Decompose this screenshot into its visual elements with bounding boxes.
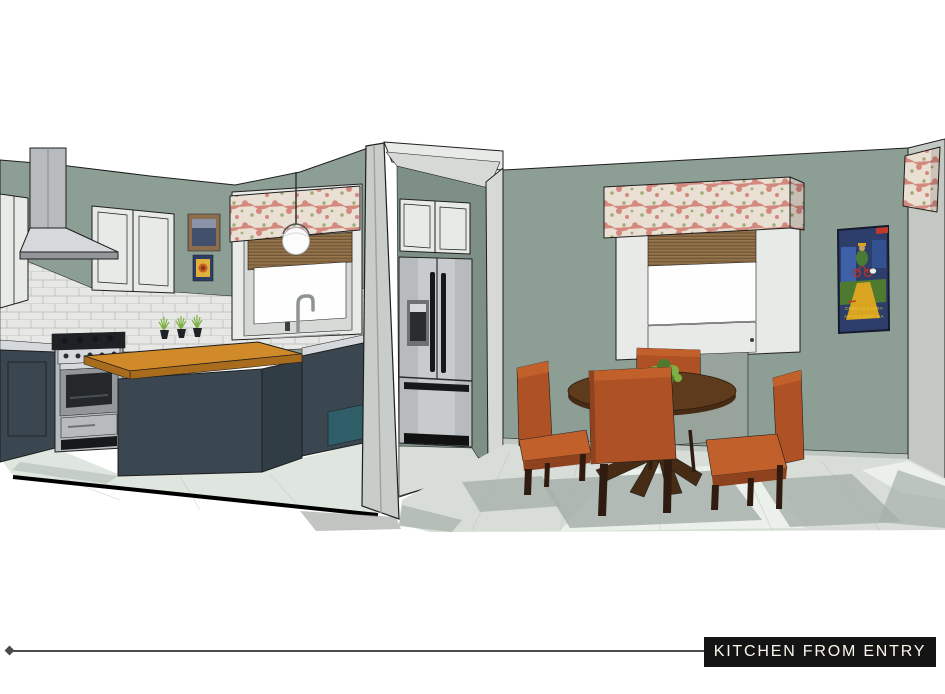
corner-valance — [903, 147, 940, 212]
wall-art-sunflower — [193, 255, 213, 281]
wall-art-photo — [188, 214, 220, 251]
slide-canvas: CKEN IN EVERY AR IN EVERY GA — [0, 0, 945, 694]
kitchen-area — [0, 148, 378, 515]
view-caption-label: KITCHEN FROM ENTRY — [704, 637, 936, 667]
fridge-upper-cabinets — [400, 199, 470, 254]
poster-text-line2: AR IN EVERY GA — [844, 314, 884, 319]
bicycle-poster: CKEN IN EVERY AR IN EVERY GA — [838, 226, 889, 333]
range-stove — [52, 332, 125, 452]
interior-rendering: CKEN IN EVERY AR IN EVERY GA — [0, 0, 945, 694]
refrigerator — [399, 257, 472, 447]
entry-doorway — [384, 142, 503, 505]
poster-text-line1: CKEN IN EVERY — [845, 306, 883, 311]
leader-line — [12, 650, 704, 652]
view-caption-text: KITCHEN FROM ENTRY — [714, 643, 927, 661]
